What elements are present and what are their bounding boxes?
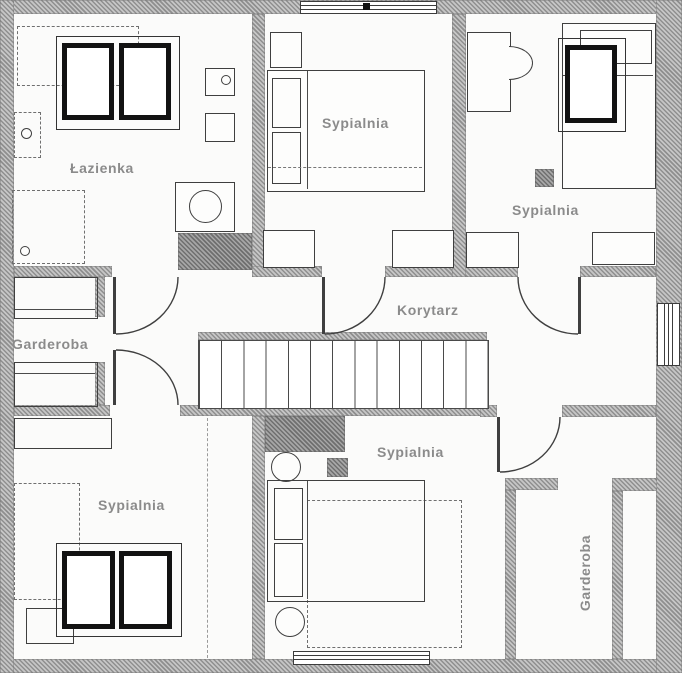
closet-rail-bottom (15, 373, 95, 374)
chimney-bathroom (178, 233, 252, 270)
wardrobe (14, 418, 112, 449)
radiator (263, 230, 315, 268)
stool (271, 452, 301, 482)
closet-partition-cap-2 (612, 478, 657, 491)
door-leaf-bedroom-top-right (578, 277, 581, 334)
bed-headboard-line (307, 71, 308, 189)
toilet-flush (221, 75, 231, 85)
bed-pillow-2 (272, 132, 301, 184)
roof-window-pane-left (62, 43, 114, 120)
shower-drain (20, 246, 30, 256)
roof-window-pane-left (62, 551, 115, 629)
room-label-bedroom-top-right: Sypialnia (512, 202, 579, 218)
room-label-wardrobe-left: Garderoba (12, 336, 88, 352)
bathroom-cabinet (205, 113, 235, 142)
radiator (466, 232, 519, 268)
door-arc-bedroom-top-right (518, 277, 578, 334)
vent-square (535, 169, 554, 187)
wall-bathroom-wardrobe (14, 266, 112, 277)
closet-partition-1 (505, 490, 516, 659)
window-bottom-wall (293, 651, 430, 665)
radiator (392, 230, 454, 268)
roof-window-pane-right (119, 551, 172, 629)
sink-drain (21, 128, 32, 139)
bed-headboard-line (307, 481, 308, 599)
wall-bedrooms-top-divider (452, 14, 466, 277)
stool (275, 607, 305, 637)
bed-pillow-1 (272, 78, 301, 128)
closet-top (14, 277, 98, 319)
window-top-divider (363, 3, 370, 10)
closet-bottom (14, 362, 98, 407)
wall-corridor-top-3 (580, 266, 656, 277)
bed-pillow-2 (274, 543, 303, 597)
room-label-bedroom-bottom-middle: Sypialnia (377, 444, 444, 460)
vent-square (327, 458, 348, 477)
wall-bedrooms-bottom-divider (252, 416, 265, 659)
washing-machine-drum (189, 190, 222, 223)
chair (509, 46, 533, 80)
closet-partition-2 (612, 491, 623, 659)
nightstand (270, 32, 302, 68)
radiator (592, 232, 655, 265)
door-arc-bathroom (116, 277, 178, 334)
window-right-wall (657, 303, 680, 366)
wall-wardrobe-right-top (562, 405, 656, 417)
closet-partition-cap-1 (505, 478, 558, 490)
room-label-bathroom: Łazienka (70, 160, 134, 176)
door-arc-wardrobe-right (500, 417, 560, 472)
roof-slope-line (207, 418, 208, 658)
desk (467, 32, 511, 112)
closet-rail-top (15, 309, 95, 310)
roof-window-pane-right (119, 43, 171, 120)
room-label-bedroom-bottom-left: Sypialnia (98, 497, 165, 513)
room-label-corridor: Korytarz (397, 302, 459, 318)
chimney-bedroom (265, 416, 345, 452)
room-label-wardrobe-right: Garderoba (577, 528, 593, 618)
door-arc-bedroom-top-middle (325, 277, 385, 334)
roof-window-pane (565, 45, 617, 123)
room-label-bedroom-top-middle: Sypialnia (322, 115, 389, 131)
bed-pillow-1 (274, 488, 303, 540)
staircase (198, 340, 489, 409)
door-arc-bedroom-bottom-left (116, 350, 178, 405)
floor-plan: Łazienka Sypialnia Sypialnia Korytarz Ga… (0, 0, 682, 673)
bed-blanket-line (268, 167, 422, 168)
